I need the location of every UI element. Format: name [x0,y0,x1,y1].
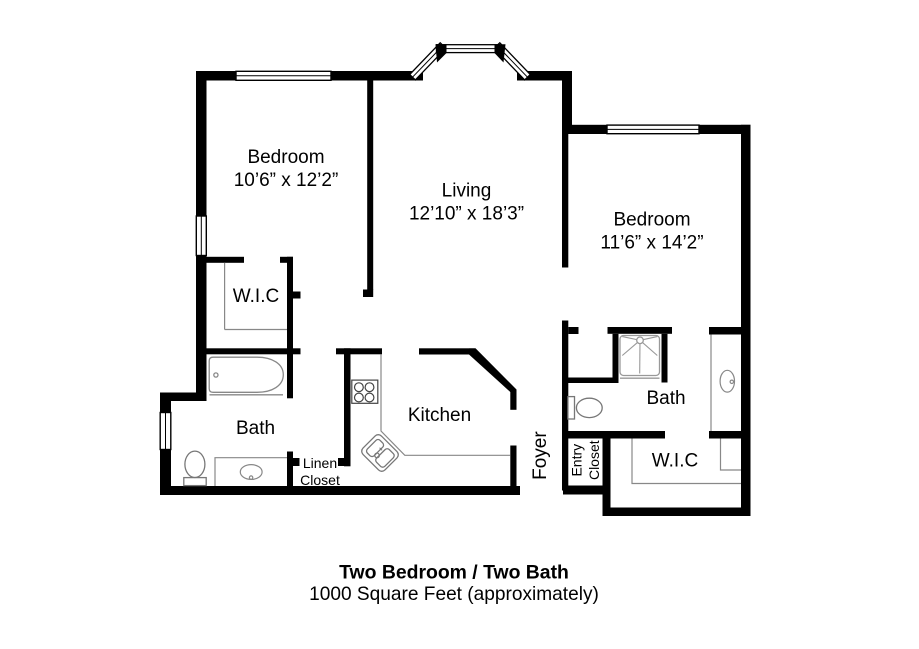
svg-text:Bedroom: Bedroom [247,147,324,168]
svg-text:Kitchen: Kitchen [408,405,471,426]
svg-text:Bedroom: Bedroom [613,210,690,231]
svg-text:11’6” x 14’2”: 11’6” x 14’2” [600,233,703,254]
svg-text:Bath: Bath [236,418,275,439]
svg-text:Living: Living [442,181,492,202]
svg-text:10’6” x 12’2”: 10’6” x 12’2” [234,170,339,191]
svg-text:Bath: Bath [646,388,685,409]
svg-text:Two Bedroom / Two Bath: Two Bedroom / Two Bath [339,562,569,584]
svg-text:12’10” x 18’3”: 12’10” x 18’3” [409,204,524,225]
svg-text:1000 Square Feet (approximatel: 1000 Square Feet (approximately) [309,584,599,605]
svg-text:Linen: Linen [303,455,337,471]
svg-text:W.I.C: W.I.C [233,286,279,307]
svg-text:Foyer: Foyer [530,431,551,480]
svg-text:W.I.C: W.I.C [652,451,698,472]
svg-text:Closet: Closet [300,472,340,488]
svg-text:Entry: Entry [569,444,585,477]
svg-text:Closet: Closet [586,440,602,480]
